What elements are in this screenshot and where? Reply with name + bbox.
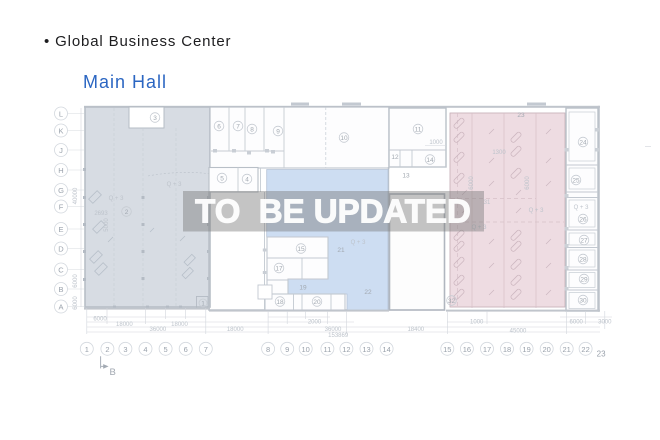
svg-text:153869: 153869 <box>328 333 349 339</box>
svg-text:11: 11 <box>415 127 422 134</box>
svg-text:F: F <box>59 203 64 212</box>
svg-text:4: 4 <box>245 177 249 184</box>
svg-text:6000: 6000 <box>93 317 107 323</box>
svg-text:6000: 6000 <box>73 274 79 288</box>
svg-text:Q + 3: Q + 3 <box>574 205 590 211</box>
svg-text:K: K <box>58 127 63 136</box>
svg-text:23: 23 <box>597 349 606 358</box>
svg-text:2693: 2693 <box>94 211 108 217</box>
svg-text:26: 26 <box>579 217 587 224</box>
svg-text:16: 16 <box>463 345 471 354</box>
svg-text:6000: 6000 <box>73 296 79 310</box>
svg-text:24: 24 <box>579 140 587 147</box>
svg-text:11: 11 <box>324 345 332 354</box>
svg-text:Q + 3: Q + 3 <box>351 240 367 246</box>
svg-text:13: 13 <box>362 345 370 354</box>
svg-text:22: 22 <box>581 345 589 354</box>
svg-text:15: 15 <box>443 345 451 354</box>
svg-text:4: 4 <box>143 345 147 354</box>
svg-text:10: 10 <box>340 135 348 142</box>
svg-text:—: — <box>645 144 651 150</box>
svg-text:17: 17 <box>275 266 283 273</box>
svg-text:A: A <box>58 303 63 312</box>
svg-text:5: 5 <box>220 176 224 183</box>
svg-text:21: 21 <box>563 345 571 354</box>
svg-text:2: 2 <box>125 209 129 216</box>
svg-text:6: 6 <box>184 345 188 354</box>
svg-text:5: 5 <box>164 345 168 354</box>
svg-text:9: 9 <box>276 129 280 136</box>
svg-text:L: L <box>59 110 63 119</box>
svg-text:6000: 6000 <box>570 320 584 326</box>
svg-text:J: J <box>59 146 63 155</box>
svg-text:1000: 1000 <box>470 320 484 326</box>
svg-text:17: 17 <box>483 345 491 354</box>
svg-text:6000: 6000 <box>525 176 531 190</box>
svg-text:1: 1 <box>85 345 89 354</box>
svg-text:20: 20 <box>543 345 551 354</box>
svg-text:32: 32 <box>448 298 456 305</box>
svg-text:14: 14 <box>426 157 434 164</box>
svg-text:21: 21 <box>337 247 345 254</box>
svg-text:28: 28 <box>579 257 587 264</box>
svg-text:14: 14 <box>382 345 390 354</box>
svg-text:1300: 1300 <box>492 150 506 156</box>
svg-text:Q + 3: Q + 3 <box>109 196 125 202</box>
svg-text:Q + 3: Q + 3 <box>529 208 545 214</box>
svg-text:9: 9 <box>285 345 289 354</box>
svg-text:5000: 5000 <box>104 218 110 232</box>
svg-text:18: 18 <box>503 345 511 354</box>
svg-text:7: 7 <box>236 124 240 131</box>
svg-text:22: 22 <box>364 289 372 296</box>
svg-text:18400: 18400 <box>407 327 424 333</box>
svg-text:C: C <box>58 266 64 275</box>
svg-text:10: 10 <box>302 345 310 354</box>
svg-text:3: 3 <box>153 115 157 122</box>
svg-text:20: 20 <box>313 299 321 306</box>
svg-text:B: B <box>58 285 63 294</box>
svg-text:TO BE UPDATED: TO BE UPDATED <box>195 192 471 229</box>
svg-text:30: 30 <box>579 298 587 305</box>
svg-text:Q + 3: Q + 3 <box>167 182 183 188</box>
svg-text:18000: 18000 <box>171 322 188 328</box>
svg-text:6000: 6000 <box>469 176 475 190</box>
svg-text:D: D <box>58 245 64 254</box>
svg-text:3000: 3000 <box>598 320 612 326</box>
svg-text:6: 6 <box>217 124 221 131</box>
svg-text:2: 2 <box>105 345 109 354</box>
svg-text:1000: 1000 <box>429 140 443 146</box>
svg-text:8: 8 <box>250 127 254 134</box>
svg-text:40000: 40000 <box>73 187 79 204</box>
svg-text:27: 27 <box>580 238 588 245</box>
svg-text:3: 3 <box>123 345 127 354</box>
svg-text:25: 25 <box>572 178 580 185</box>
svg-text:18000: 18000 <box>227 327 244 333</box>
svg-text:2000: 2000 <box>308 320 322 326</box>
svg-text:18: 18 <box>276 299 284 306</box>
svg-text:29: 29 <box>580 277 588 284</box>
svg-text:19: 19 <box>522 345 530 354</box>
svg-text:12: 12 <box>342 345 350 354</box>
svg-text:B: B <box>110 367 116 378</box>
svg-text:31: 31 <box>484 200 491 206</box>
svg-text:H: H <box>58 166 63 175</box>
svg-text:45000: 45000 <box>510 329 527 335</box>
svg-text:8: 8 <box>266 345 270 354</box>
svg-text:1: 1 <box>201 301 205 308</box>
svg-text:7: 7 <box>204 345 208 354</box>
svg-text:12: 12 <box>391 154 399 161</box>
svg-text:23: 23 <box>517 112 525 119</box>
svg-text:13: 13 <box>402 173 410 180</box>
svg-text:18000: 18000 <box>116 322 133 328</box>
svg-text:G: G <box>58 186 64 195</box>
svg-text:E: E <box>58 225 63 234</box>
svg-text:15: 15 <box>297 246 305 253</box>
svg-text:19: 19 <box>299 285 307 292</box>
svg-text:36000: 36000 <box>150 327 167 333</box>
